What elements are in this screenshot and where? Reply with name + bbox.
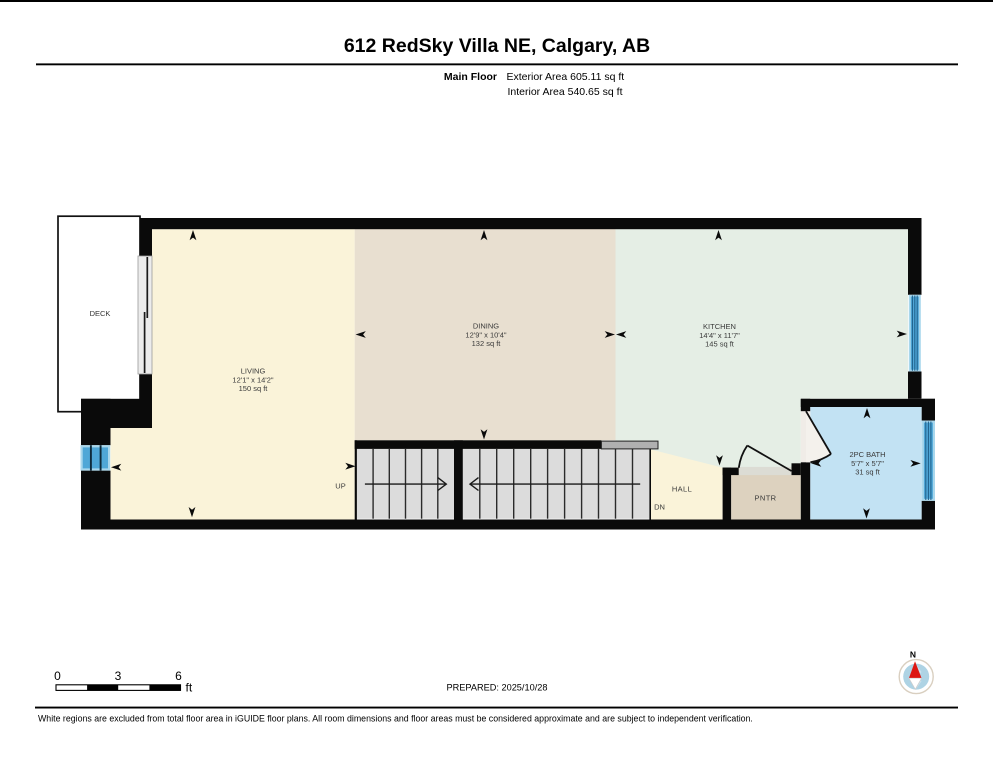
svg-text:PNTR: PNTR <box>754 494 776 503</box>
svg-text:Main Floor: Main Floor <box>444 71 497 83</box>
svg-text:3: 3 <box>115 669 122 683</box>
svg-text:HALL: HALL <box>672 485 692 494</box>
svg-text:White regions are excluded fro: White regions are excluded from total fl… <box>38 714 753 724</box>
svg-text:612 RedSky Villa NE, Calgary,: 612 RedSky Villa NE, Calgary, AB <box>344 35 650 57</box>
svg-text:2PC BATH: 2PC BATH <box>849 450 885 459</box>
svg-text:KITCHEN: KITCHEN <box>703 322 736 331</box>
svg-text:LIVING: LIVING <box>241 367 266 376</box>
svg-text:DN: DN <box>654 503 665 512</box>
svg-text:ft: ft <box>186 681 193 695</box>
svg-text:0: 0 <box>54 669 61 683</box>
svg-text:DINING: DINING <box>473 322 499 331</box>
svg-text:DECK: DECK <box>90 309 111 318</box>
svg-text:UP: UP <box>335 482 345 491</box>
svg-text:132 sq ft: 132 sq ft <box>472 339 502 348</box>
svg-text:Exterior Area 605.11 sq ft: Exterior Area 605.11 sq ft <box>507 71 625 83</box>
svg-text:Interior Area 540.65 sq ft: Interior Area 540.65 sq ft <box>508 86 623 98</box>
svg-text:31 sq ft: 31 sq ft <box>855 468 881 477</box>
svg-text:6: 6 <box>175 669 182 683</box>
svg-text:N: N <box>910 650 916 660</box>
svg-text:150 sq ft: 150 sq ft <box>239 384 269 393</box>
svg-text:145 sq ft: 145 sq ft <box>705 340 735 349</box>
svg-text:PREPARED: 2025/10/28: PREPARED: 2025/10/28 <box>447 683 548 693</box>
